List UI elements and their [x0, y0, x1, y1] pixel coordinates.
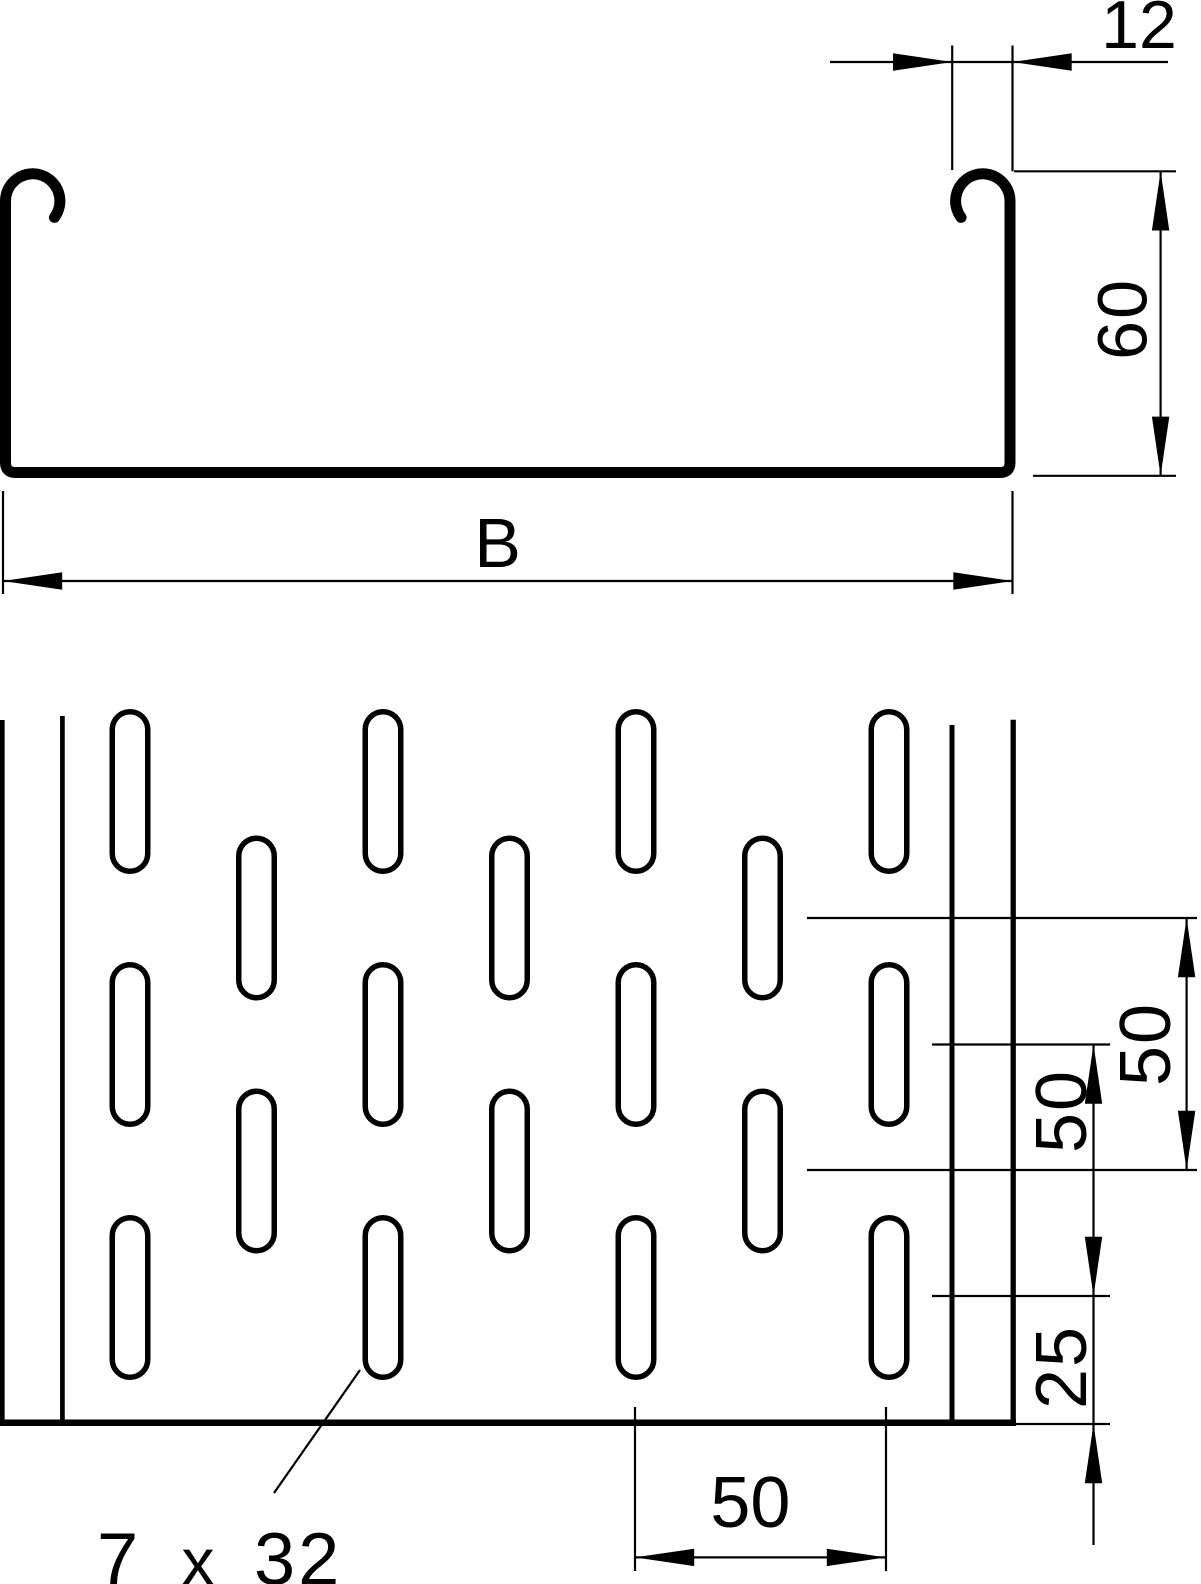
svg-text:50: 50	[1022, 1069, 1102, 1153]
svg-text:x: x	[182, 1525, 215, 1584]
svg-text:50: 50	[710, 1463, 790, 1543]
svg-text:12: 12	[1101, 0, 1177, 63]
svg-text:25: 25	[1022, 1325, 1102, 1409]
svg-text:60: 60	[1084, 278, 1162, 360]
svg-text:B: B	[474, 504, 521, 582]
svg-text:50: 50	[1106, 1002, 1186, 1086]
svg-text:7: 7	[97, 1518, 138, 1584]
svg-text:32: 32	[254, 1518, 342, 1584]
